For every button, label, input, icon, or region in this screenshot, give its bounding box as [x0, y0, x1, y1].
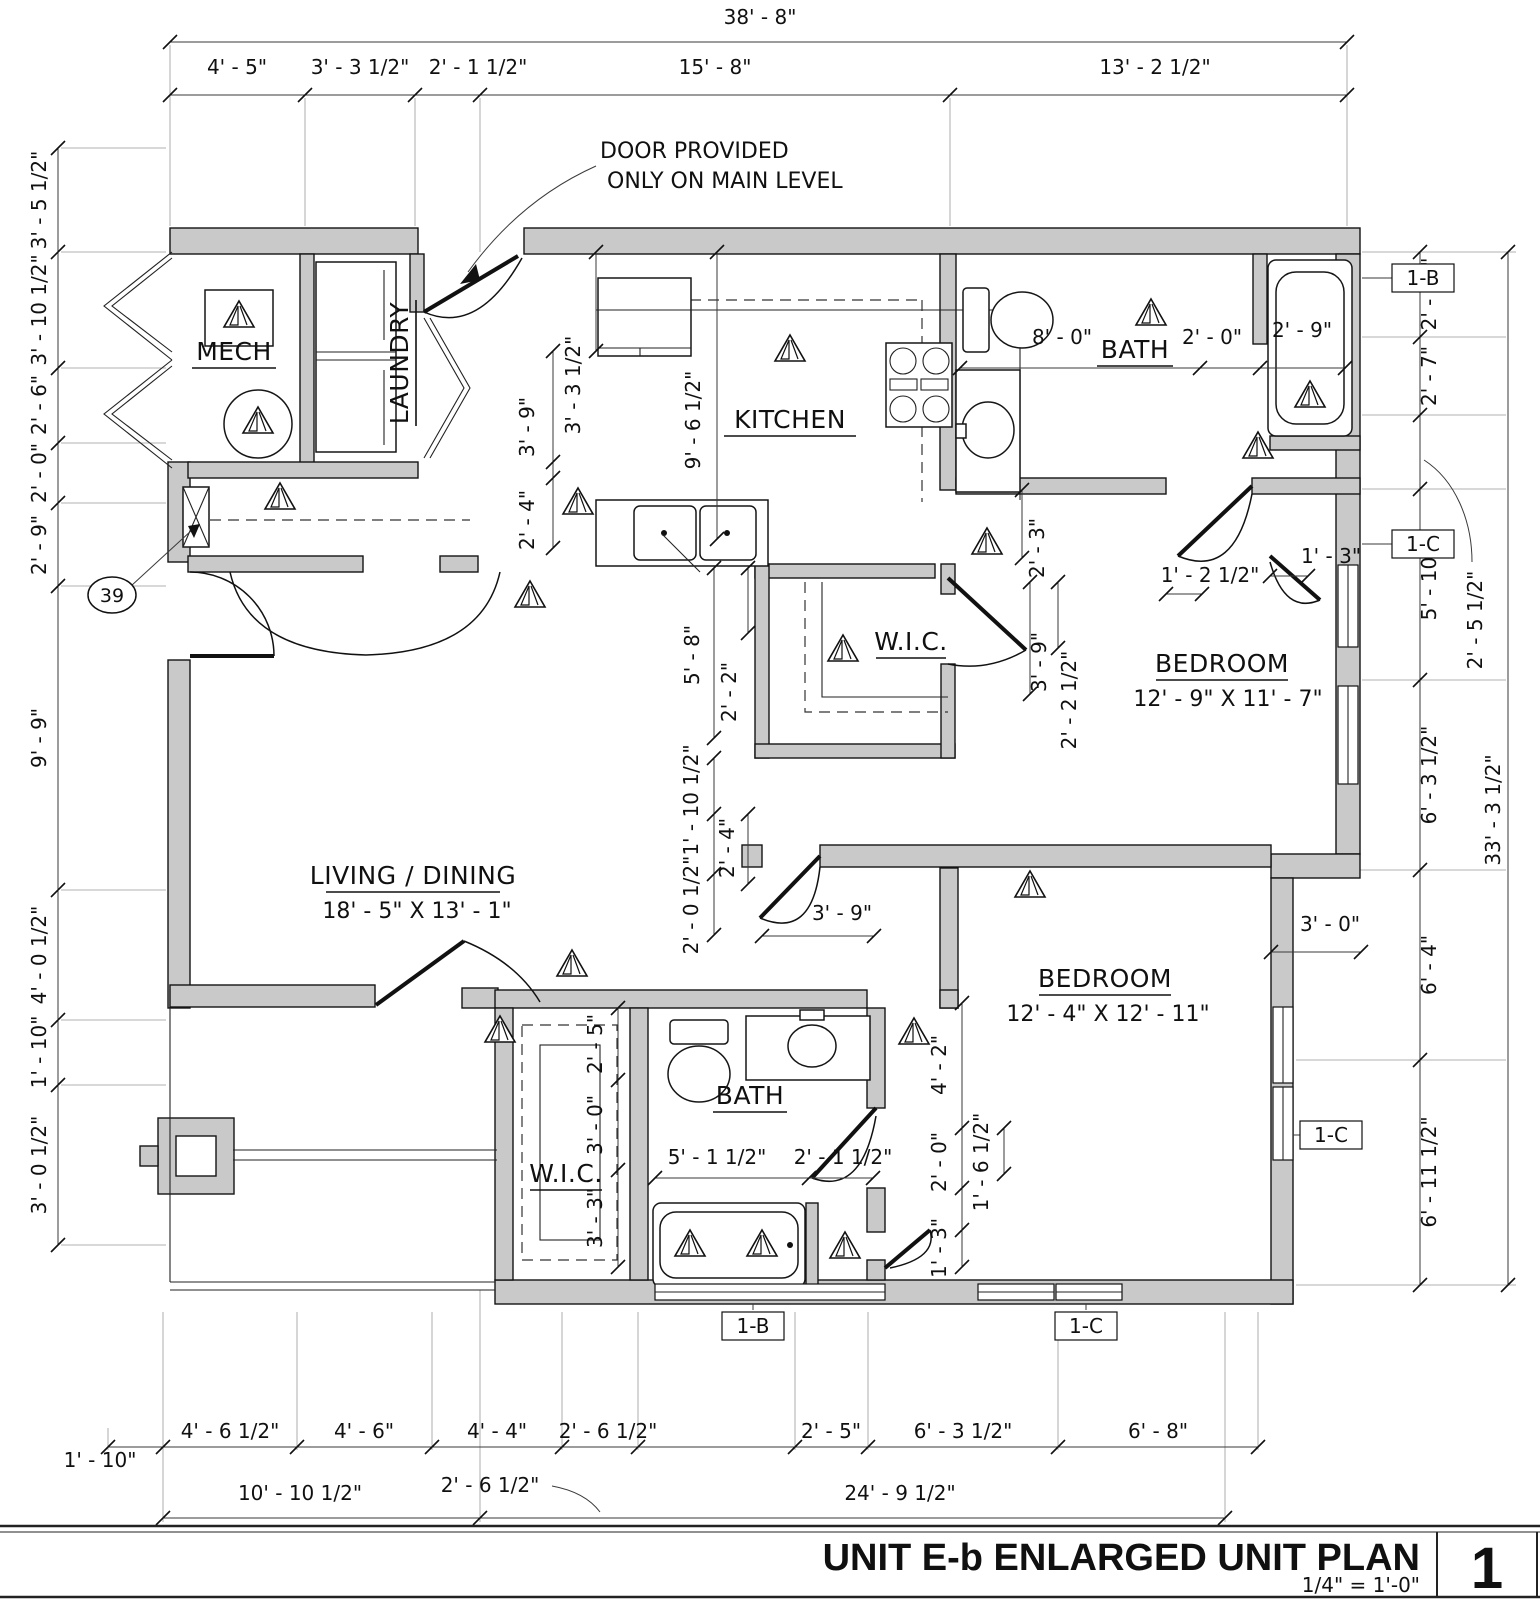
dim-label: 4' - 5" — [207, 55, 267, 79]
room-label-kitchen: KITCHEN — [734, 405, 846, 434]
wall-tag-1c: 1-C — [1069, 1314, 1103, 1338]
door-leaf — [1178, 486, 1252, 556]
dim-label: 2' - 1 1/2" — [794, 1145, 893, 1169]
dim-label: 2' - 5" — [583, 1014, 607, 1074]
wall-tag-1b: 1-B — [1407, 266, 1440, 290]
floor-plan-drawing: 38' - 8" 4' - 5" 3' - 3 1/2" 2' - 1 1/2"… — [0, 0, 1540, 1600]
dim-label: 2' - 3" — [1025, 518, 1049, 578]
dim-label: 2' - 0 1/2" — [679, 856, 703, 955]
dim-label: 1' - 10" — [64, 1448, 137, 1472]
keynote-triangle-icon — [972, 528, 1002, 554]
dim-label: 24' - 9 1/2" — [844, 1481, 955, 1505]
room-label-bath-lower: BATH — [716, 1081, 784, 1110]
room-size-bedroom-upper: 12' - 9" X 11' - 7" — [1133, 687, 1322, 712]
door-note-line1: DOOR PROVIDED — [600, 139, 789, 164]
range-icon — [886, 343, 952, 427]
keynote-triangle-icon — [1243, 432, 1273, 458]
dim-label: 4' - 2" — [927, 1035, 951, 1095]
dim-label: 6' - 8" — [1128, 1419, 1188, 1443]
dim-label: 2' - 5 1/2" — [1463, 571, 1487, 670]
dim-label: 3' - 3 1/2" — [311, 55, 410, 79]
bath-sink-icon — [956, 370, 1020, 492]
dim-label: 1' - 2 1/2" — [1161, 563, 1260, 587]
dim-label: 13' - 2 1/2" — [1099, 55, 1210, 79]
dim-label: 6' - 11 1/2" — [1417, 1116, 1441, 1227]
dim-label: 3' - 9" — [515, 397, 539, 457]
dim-label: 3' - 9" — [812, 901, 872, 925]
dim-label: 5' - 8" — [680, 625, 704, 685]
dim-label: 3' - 0 1/2" — [27, 1116, 51, 1215]
door-leaf — [424, 256, 518, 312]
wall-tag-1c: 1-C — [1406, 532, 1440, 556]
dim-label: 1' - 6 1/2" — [969, 1113, 993, 1212]
dim-label: 1' - 3" — [1301, 544, 1361, 568]
bathtub-lower-icon — [653, 1203, 805, 1287]
dim-label: 33' - 3 1/2" — [1481, 754, 1505, 865]
sheet-scale: 1/4" = 1'-0" — [1302, 1573, 1420, 1597]
room-label-bedroom-lower: BEDROOM — [1038, 964, 1172, 993]
sink-lower-icon — [746, 1010, 870, 1080]
dim-label: 2' - 6 1/2" — [441, 1473, 540, 1497]
wall-tag-1c: 1-C — [1314, 1123, 1348, 1147]
dim-label: 6' - 4" — [1417, 935, 1441, 995]
dim-label: 2' - 4" — [515, 490, 539, 550]
keynote-triangle-icon — [828, 635, 858, 661]
wall-tag-1b: 1-B — [737, 1314, 770, 1338]
keynote-triangle-icon — [775, 335, 805, 361]
washer-dryer-icon — [316, 262, 396, 452]
dim-label: 10' - 10 1/2" — [238, 1481, 362, 1505]
dim-label: 6' - 3 1/2" — [914, 1419, 1013, 1443]
room-label-mech: MECH — [196, 337, 272, 366]
keynote-triangle-icon — [515, 581, 545, 607]
sheet-number: 1 — [1471, 1536, 1503, 1600]
dim-label: 4' - 6" — [334, 1419, 394, 1443]
dim-label: 2' - 9" — [1272, 318, 1332, 342]
dim-label: 15' - 8" — [679, 55, 752, 79]
door-leaf — [376, 941, 464, 1005]
room-label-bath-upper: BATH — [1101, 335, 1169, 364]
dim-label: 3' - 10 1/2" — [27, 254, 51, 365]
dim-label: 8' - 0" — [1032, 325, 1092, 349]
dim-label: 1' - 3" — [927, 1218, 951, 1278]
room-label-wic-lower: W.I.C. — [529, 1159, 603, 1188]
dim-label: 2' - 0" — [927, 1132, 951, 1192]
dim-label: 2' - 7" — [1417, 346, 1441, 406]
title-block: UNIT E-b ENLARGED UNIT PLAN 1/4" = 1'-0"… — [0, 1526, 1540, 1600]
room-size-bedroom-lower: 12' - 4" X 12' - 11" — [1006, 1002, 1209, 1027]
dim-label: 6' - 3 1/2" — [1417, 726, 1441, 825]
dim-label: 38' - 8" — [724, 5, 797, 29]
dim-label: 4' - 6 1/2" — [181, 1419, 280, 1443]
dim-label: 4' - 4" — [467, 1419, 527, 1443]
dim-label: 2' - 2 1/2" — [1057, 651, 1081, 750]
keynote-39: 39 — [100, 585, 124, 607]
refrigerator-icon — [598, 278, 691, 356]
keynote-triangle-icon — [563, 488, 593, 514]
dim-label: 9' - 9" — [27, 708, 51, 768]
bay-window — [104, 252, 172, 468]
dim-label: 2' - 1 1/2" — [429, 55, 528, 79]
dim-label: 3' - 0" — [1300, 912, 1360, 936]
dim-label: 2' - 5" — [801, 1419, 861, 1443]
dim-label: 2' - 2" — [717, 662, 741, 722]
dim-label: 3' - 0" — [583, 1095, 607, 1155]
dim-label: 2' - 6 1/2" — [559, 1419, 658, 1443]
room-size-living-dining: 18' - 5" X 13' - 1" — [322, 899, 511, 924]
room-label-laundry: LAUNDRY — [385, 302, 414, 425]
room-label-bedroom-upper: BEDROOM — [1155, 649, 1289, 678]
room-label-wic-upper: W.I.C. — [874, 627, 948, 656]
dim-label: 4' - 0 1/2" — [27, 906, 51, 1005]
dim-label: 2' - 0" — [1182, 325, 1242, 349]
dim-label: 1' - 10" — [27, 1016, 51, 1089]
dim-label: 1' - 10 1/2" — [679, 744, 703, 855]
bathtub-icon — [1268, 260, 1352, 436]
door-note-line2: ONLY ON MAIN LEVEL — [607, 169, 843, 194]
keynote-triangle-icon — [557, 950, 587, 976]
dim-label: 3' - 9" — [1027, 632, 1051, 692]
dim-label: 2' - 0" — [27, 443, 51, 503]
dim-label: 2' - 4" — [715, 818, 739, 878]
dim-label: 9' - 6 1/2" — [681, 371, 705, 470]
dim-label: 3' - 3" — [583, 1188, 607, 1248]
room-label-living-dining: LIVING / DINING — [310, 861, 516, 890]
dim-label: 2' - 9" — [27, 515, 51, 575]
keynote-triangle-icon — [899, 1018, 929, 1044]
drawing-sheet: 38' - 8" 4' - 5" 3' - 3 1/2" 2' - 1 1/2"… — [0, 0, 1540, 1600]
door-leaf — [948, 578, 1026, 650]
dim-label: 2' - 6" — [27, 375, 51, 435]
keynote-triangle-icon — [265, 483, 295, 509]
keynote-triangle-icon — [830, 1232, 860, 1258]
dim-label: 3' - 5 1/2" — [27, 151, 51, 250]
dim-label: 5' - 1 1/2" — [668, 1145, 767, 1169]
dim-label: 3' - 3 1/2" — [561, 336, 585, 435]
keynote-triangle-icon — [1015, 871, 1045, 897]
keynote-triangle-icon — [1136, 299, 1166, 325]
